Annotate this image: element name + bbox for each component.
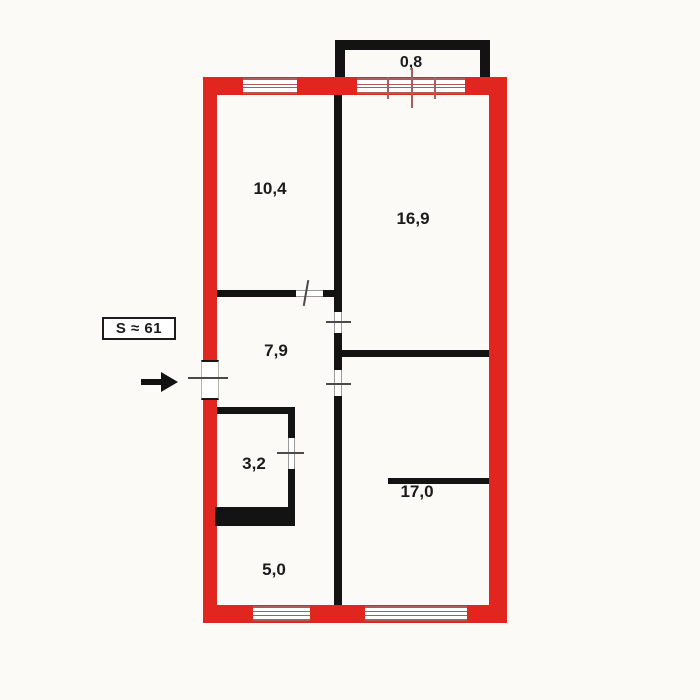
window-bottom-left: [253, 606, 310, 621]
balcony-wall-left: [335, 40, 345, 77]
outer-wall-right: [489, 77, 507, 623]
bathroom-wall-bottom-thick: [215, 507, 295, 526]
window-top-left: [243, 78, 297, 94]
inner-wall-living-room: [342, 350, 489, 357]
window-mullion: [387, 77, 389, 99]
balcony-wall-right: [480, 40, 490, 77]
total-area-box: S ≈ 61: [102, 317, 176, 340]
bathroom-wall-right-upper: [288, 407, 295, 438]
room-label-hallway: 7,9: [264, 341, 288, 361]
window-sill-line: [253, 615, 310, 616]
room-label-bedroom: 10,4: [253, 179, 286, 199]
bathroom-wall-top: [217, 407, 295, 414]
room-label-bathroom: 3,2: [242, 454, 266, 474]
entrance-door-opening: [201, 360, 219, 400]
outer-wall-left: [203, 77, 217, 623]
window-sill-line: [243, 87, 297, 88]
inner-wall-bedroom-hall-a: [217, 290, 296, 297]
inner-wall-vertical-lower: [334, 396, 342, 605]
door-tick-living-room: [326, 321, 351, 323]
door-tick-room-right: [326, 383, 351, 385]
entrance-door-tick: [188, 377, 228, 379]
window-sill-line: [365, 615, 467, 616]
window-balcony: [357, 78, 465, 94]
floor-plan: 0,8 10,4 16: [0, 0, 700, 700]
inner-wall-vertical-upper: [334, 95, 342, 312]
bathroom-wall-right-lower: [288, 469, 295, 510]
inner-wall-bedroom-hall-b: [323, 290, 334, 297]
window-sill-line: [253, 611, 310, 612]
room-label-living-room: 16,9: [396, 209, 429, 229]
window-mullion: [434, 77, 436, 99]
door-tick-bathroom: [277, 452, 304, 454]
window-sill-line: [365, 611, 467, 612]
entrance-arrow-icon: [161, 372, 178, 392]
inner-wall-vertical-middle: [334, 333, 342, 370]
room-label-kitchen: 5,0: [262, 560, 286, 580]
door-opening-bedroom: [296, 290, 323, 297]
window-mullion: [411, 68, 413, 108]
window-sill-line: [243, 84, 297, 85]
balcony-wall-top: [335, 40, 490, 50]
room-label-room-right: 17,0: [400, 482, 433, 502]
entrance-arrow-shaft: [141, 379, 163, 385]
window-bottom-right: [365, 606, 467, 621]
